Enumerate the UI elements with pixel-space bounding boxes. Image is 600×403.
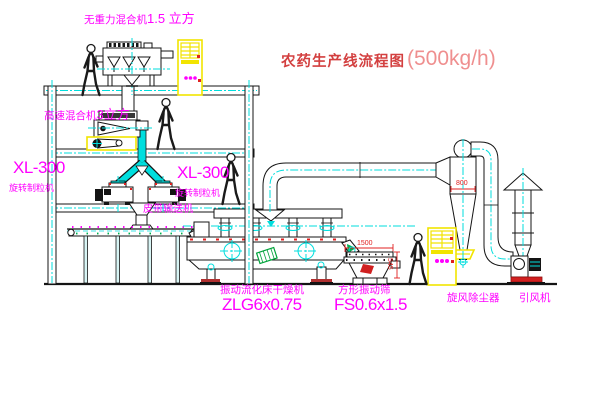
label-granulator-right-model: XL-300 [177, 164, 229, 181]
belt-conveyor [67, 227, 199, 283]
title-capacity: (500kg/h) [407, 47, 496, 71]
label-belt-conveyor: 皮带输送机 [143, 205, 193, 215]
title-text: 农药生产线流程图 [281, 50, 405, 71]
label-cyclone: 旋风除尘器 [447, 293, 500, 304]
label-floor2-mixer: 高速混合机3立方 [44, 108, 130, 122]
label-granulator-left-model: XL-300 [13, 159, 65, 176]
diagram-title: 农药生产线流程图 (500kg/h) [281, 47, 496, 71]
gravity-free-mixer [96, 38, 173, 111]
flow-diagram-canvas: 农药生产线流程图 (500kg/h) 无重力混合机1.5 立方 高速混合机3立方… [0, 0, 600, 403]
dimension-sieve-length: 1500 [357, 240, 373, 247]
dimension-cyclone: 800 [456, 180, 468, 187]
control-cabinet-top [178, 40, 202, 95]
label-dryer-name: 振动流化床干燥机 [220, 285, 304, 296]
person-figure [410, 234, 427, 285]
dimension-sieve-height: 545 [386, 258, 393, 270]
person-figure [158, 99, 175, 150]
y-chute [111, 163, 170, 185]
label-dryer-model: ZLG6x0.75 [222, 296, 302, 313]
control-cabinet-ground [428, 228, 456, 285]
label-granulator-left-name: 旋转制粒机 [9, 184, 54, 193]
label-fan: 引风机 [519, 293, 551, 304]
label-granulator-right-name: 旋转制粒机 [175, 189, 220, 198]
induced-draft-fan [507, 256, 545, 285]
fan-inlet-pipe [471, 142, 513, 266]
label-top-mixer: 无重力混合机1.5 立方 [84, 12, 195, 26]
label-sieve-model: FS0.6x1.5 [334, 296, 407, 313]
label-sieve-name: 方形振动筛 [338, 285, 391, 296]
